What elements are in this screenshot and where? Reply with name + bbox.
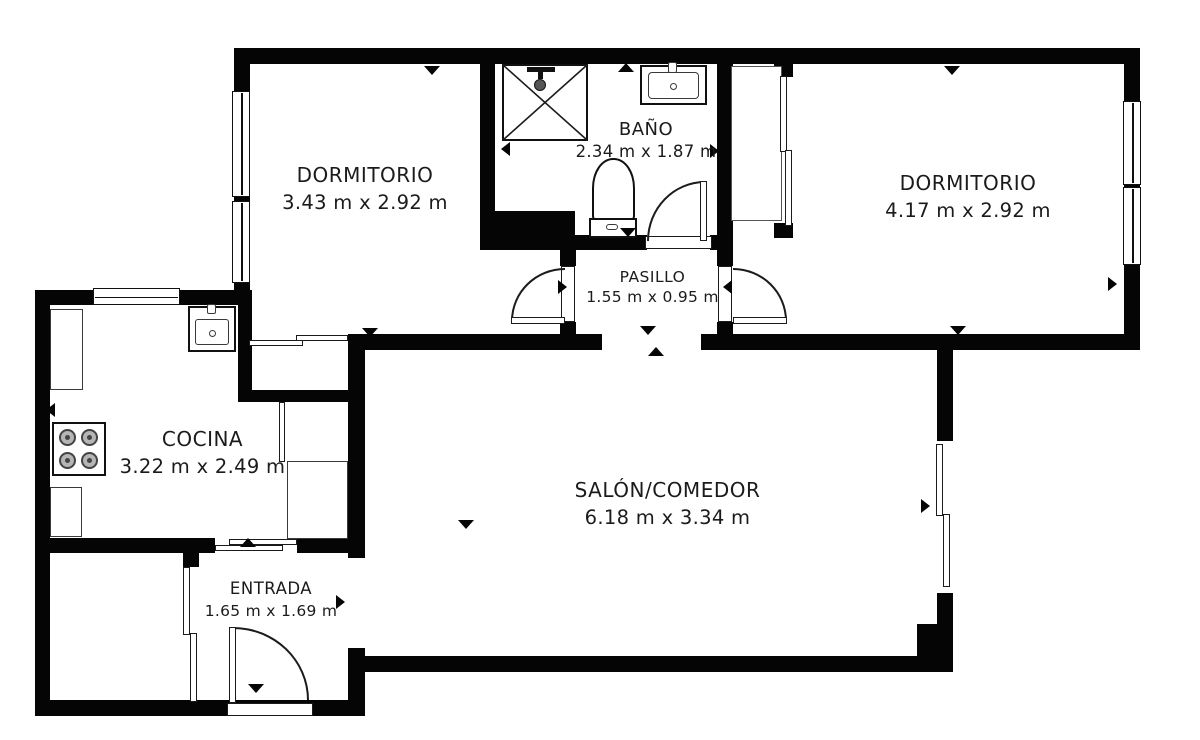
marker-triangle xyxy=(458,520,474,529)
room-label-salon-comedor: SALÓN/COMEDOR 6.18 m x 3.34 m xyxy=(540,477,795,532)
sliding-window-panel xyxy=(936,444,943,516)
wall xyxy=(348,656,953,672)
marker-triangle xyxy=(618,63,634,72)
room-name: BAÑO xyxy=(556,118,736,141)
marker-triangle xyxy=(558,280,567,294)
floor-plan: DORMITORIO 3.43 m x 2.92 m BAÑO 2.34 m x… xyxy=(0,0,1200,740)
window xyxy=(1123,187,1141,265)
room-dimensions: 1.65 m x 1.69 m xyxy=(195,600,347,623)
window xyxy=(93,288,180,305)
room-dimensions: 4.17 m x 2.92 m xyxy=(843,197,1093,225)
marker-triangle xyxy=(620,228,636,237)
marker-triangle xyxy=(501,142,510,156)
door-swing-arc xyxy=(733,268,787,321)
stove-burner-icon xyxy=(59,452,76,469)
room-label-bano: BAÑO 2.34 m x 1.87 m xyxy=(556,118,736,163)
sliding-door-panel xyxy=(296,335,348,341)
marker-triangle xyxy=(362,328,378,337)
wall xyxy=(710,235,733,250)
wall xyxy=(348,334,575,350)
wall xyxy=(717,334,1140,350)
room-label-dormitorio-1: DORMITORIO 3.43 m x 2.92 m xyxy=(240,162,490,217)
kitchen-sink-drain xyxy=(209,330,216,337)
sliding-door-panel xyxy=(249,340,303,346)
wall xyxy=(348,334,365,558)
marker-triangle xyxy=(950,326,966,335)
wall xyxy=(297,538,365,553)
room-label-entrada: ENTRADA 1.65 m x 1.69 m xyxy=(195,578,347,623)
wall xyxy=(717,322,733,350)
door-swing-arc xyxy=(511,268,565,321)
wall xyxy=(238,290,252,402)
wall xyxy=(575,334,602,350)
marker-triangle xyxy=(46,403,55,417)
wall xyxy=(35,700,365,716)
room-dimensions: 1.55 m x 0.95 m xyxy=(575,287,730,307)
room-dimensions: 2.34 m x 1.87 m xyxy=(556,141,736,163)
door-swing-arc xyxy=(647,181,705,241)
room-name: DORMITORIO xyxy=(240,162,490,189)
window-pane-line xyxy=(95,297,178,299)
wall xyxy=(937,350,953,443)
wall xyxy=(183,553,199,567)
room-dimensions: 3.22 m x 2.49 m xyxy=(95,453,310,481)
sliding-door-panel xyxy=(780,76,787,152)
wall xyxy=(234,48,1140,64)
marker-triangle xyxy=(648,347,664,356)
room-dimensions: 3.43 m x 2.92 m xyxy=(240,189,490,217)
door-leaf xyxy=(700,181,707,241)
room-label-cocina: COCINA 3.22 m x 2.49 m xyxy=(95,426,310,481)
room-name: SALÓN/COMEDOR xyxy=(540,477,795,504)
room-name: COCINA xyxy=(95,426,310,453)
toilet-flush-button xyxy=(606,224,618,230)
room-label-pasillo: PASILLO 1.55 m x 0.95 m xyxy=(575,267,730,307)
marker-triangle xyxy=(240,538,256,547)
sliding-door-panel xyxy=(183,567,190,635)
countertop xyxy=(50,487,82,537)
room-name: PASILLO xyxy=(575,267,730,287)
sliding-door-panel xyxy=(785,150,792,226)
marker-triangle xyxy=(248,684,264,693)
door-leaf xyxy=(511,317,565,324)
sliding-door-panel xyxy=(190,633,197,702)
entrance-door-sill xyxy=(227,703,313,716)
wardrobe xyxy=(731,66,782,221)
marker-triangle xyxy=(1108,277,1117,291)
washbasin-faucet xyxy=(668,62,677,73)
marker-triangle xyxy=(944,66,960,75)
window xyxy=(1123,101,1141,185)
washbasin-drain xyxy=(670,83,677,90)
room-name: ENTRADA xyxy=(195,578,347,600)
shower-head-icon xyxy=(538,72,543,79)
wall xyxy=(35,290,50,716)
shower-head-icon xyxy=(534,79,546,91)
window-pane-line xyxy=(1132,103,1134,183)
marker-triangle xyxy=(640,326,656,335)
wall xyxy=(701,334,718,350)
toilet-bowl xyxy=(592,158,635,222)
window-pane-line xyxy=(1132,189,1134,263)
door-leaf xyxy=(733,317,787,324)
room-dimensions: 6.18 m x 3.34 m xyxy=(540,504,795,532)
wall xyxy=(717,250,733,266)
entrance-door-swing-arc xyxy=(233,627,309,700)
marker-triangle xyxy=(921,499,930,513)
wall xyxy=(238,390,348,402)
entrance-door-leaf xyxy=(229,627,236,703)
kitchen-faucet xyxy=(207,304,216,314)
wall xyxy=(560,250,576,266)
countertop xyxy=(50,309,83,390)
stove-burner-icon xyxy=(59,429,76,446)
sliding-window-panel xyxy=(943,514,950,587)
room-name: DORMITORIO xyxy=(843,170,1093,197)
wall xyxy=(35,538,215,553)
marker-triangle xyxy=(424,66,440,75)
room-label-dormitorio-2: DORMITORIO 4.17 m x 2.92 m xyxy=(843,170,1093,225)
